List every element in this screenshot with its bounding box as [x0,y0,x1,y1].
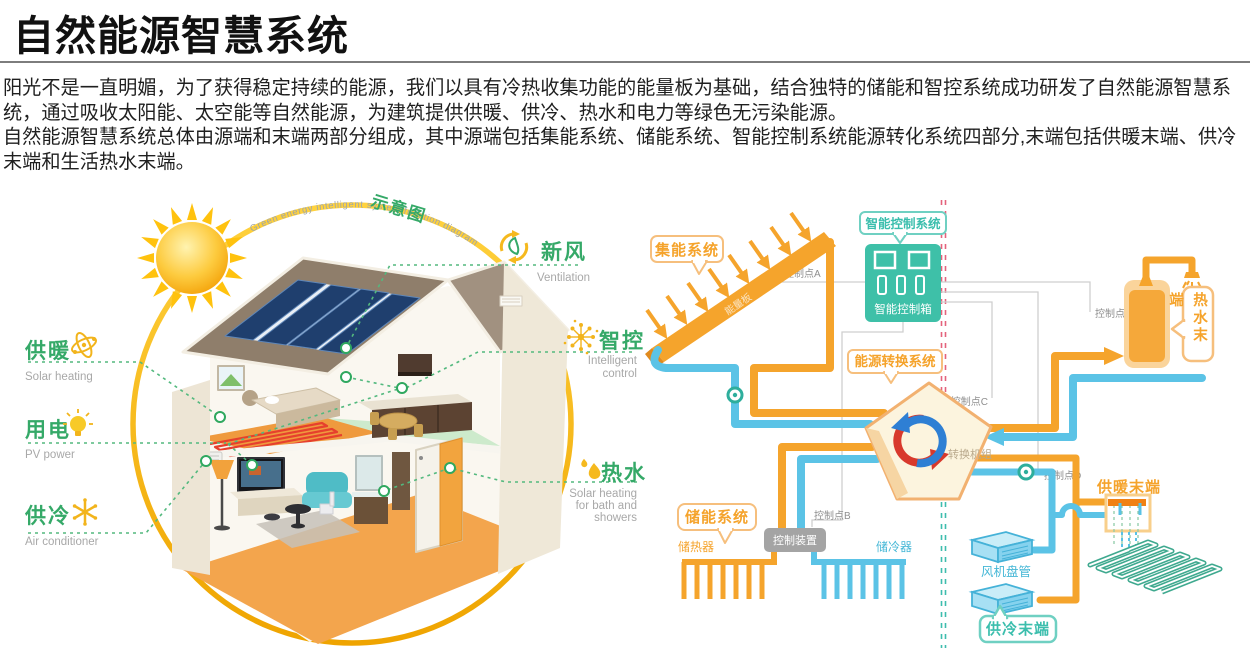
fan-coil-label: 风机盘管 [981,564,1031,579]
shower-cabin [416,438,462,552]
feature-heating-sub: Solar heating [25,371,93,383]
storage-system-label: 储能系统 [685,508,749,526]
svg-text:Green energy intelligent syste: Green energy intelligent system function… [248,199,480,249]
feature-cooling-label: 供冷 [24,504,71,528]
feature-ventilation-label: 新风 [541,240,587,264]
smart-control-icon [564,320,599,355]
feature-hotwater-sub2: for bath and [576,500,637,512]
schematic-label: 示意图 [369,191,429,227]
smart-control-box: 智能控制箱 [865,244,941,322]
collection-system-bubble: 集能系统 [651,236,723,274]
gable-vent [500,296,522,306]
house-illustration [172,258,568,644]
cold-storage-label: 储冷器 [876,539,912,554]
page-title: 自然能源智慧系统 [13,2,349,62]
conversion-bubble: 能源转换系统 [848,350,942,383]
house-diagram: Green energy intelligent system function… [24,191,647,644]
atom-icon [70,331,98,359]
sun-icon [137,203,247,313]
arc-caption: Green energy intelligent system function… [248,199,480,249]
floor-heating-coil [1090,542,1220,592]
smart-control-box-label: 智能控制箱 [874,302,932,316]
heating-terminal-radiator [1106,495,1150,548]
feature-ventilation-sub: Ventilation [537,272,590,284]
feature-hotwater: 热水 Solar heating for bath and showers [569,459,647,524]
feature-smart: 智控 Intelligent control [564,320,645,380]
tv [238,458,284,492]
feature-hotwater-sub1: Solar heating [569,488,637,500]
collection-system-label: 集能系统 [654,241,719,259]
smart-control-system-label: 智能控制系统 [864,216,941,231]
feature-smart-sub1: Intelligent [588,355,638,367]
feature-cooling-sub: Air conditioner [25,536,99,548]
feature-heating-label: 供暖 [24,339,71,363]
control-device-label: 控制装置 [773,533,817,547]
intro-paragraph-1: 阳光不是一直明媚，为了获得稳定持续的能源，我们以具有冷热收集功能的能量板为基础，… [3,77,1247,126]
feature-hotwater-sub3: showers [594,512,637,524]
diagram-canvas: Green energy intelligent system function… [0,180,1250,650]
bath-shelf [392,452,410,510]
cooling-terminal-label: 供冷末端 [985,620,1050,638]
feature-power: 用电 PV power [25,409,93,461]
hot-water-terminal-label: 热水末端 [1187,292,1211,358]
feature-smart-label: 智控 [599,329,645,353]
heat-storage-comb [682,552,774,599]
conversion-system-label: 能源转换系统 [855,353,936,369]
ventilation-icon [501,230,526,264]
feature-power-label: 用电 [25,419,71,442]
feature-hotwater-label: 热水 [601,461,647,485]
control-point-b: 控制点B [814,509,851,522]
right-wall [498,262,568,574]
leaf-icon [509,238,518,254]
feature-smart-sub2: control [602,368,637,380]
heat-storage-label: 储热器 [678,539,714,554]
smart-control-bubble: 智能控制系统 [860,212,946,243]
stool [264,514,280,521]
pipe-unit-to-tank [989,356,1108,428]
control-device-box: 控制装置 [764,528,826,552]
system-diagram: 控制点A 控制点C 控制点D 控制点E 控制点B 能量板 [645,200,1220,648]
range-hood [398,354,432,374]
snowflake-icon [73,498,97,526]
intro-paragraph-2: 自然能源智慧系统总体由源端和末端两部分组成，其中源端包括集能系统、储能系统、智能… [3,126,1247,175]
mirror [356,456,382,490]
conversion-unit-label: 转换机组 [948,447,992,461]
feature-power-sub: PV power [25,449,75,461]
cold-storage-comb [814,552,906,599]
page: 自然能源智慧系统 阳光不是一直明媚，为了获得稳定持续的能源，我们以具有冷热收集功… [0,0,1250,650]
water-drop-icon [581,459,600,479]
storage-bubble: 储能系统 [678,504,756,543]
sofa [302,472,352,508]
feature-cooling: 供冷 Air conditioner [24,498,99,548]
heating-terminal-label: 供暖末端 [1096,478,1161,496]
title-divider [0,61,1250,63]
feature-heating: 供暖 Solar heating [24,331,98,383]
